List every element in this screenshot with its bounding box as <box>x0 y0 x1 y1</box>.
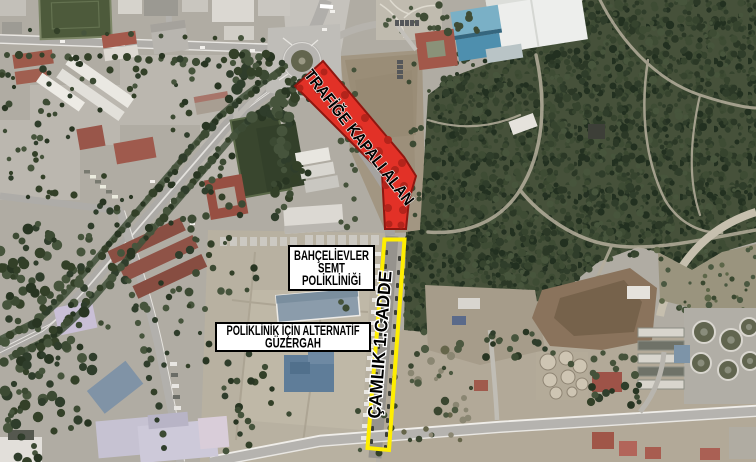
svg-text:GÜZERGAH: GÜZERGAH <box>265 336 321 351</box>
svg-text:POLİKLİNİĞİ: POLİKLİNİĞİ <box>302 273 361 288</box>
